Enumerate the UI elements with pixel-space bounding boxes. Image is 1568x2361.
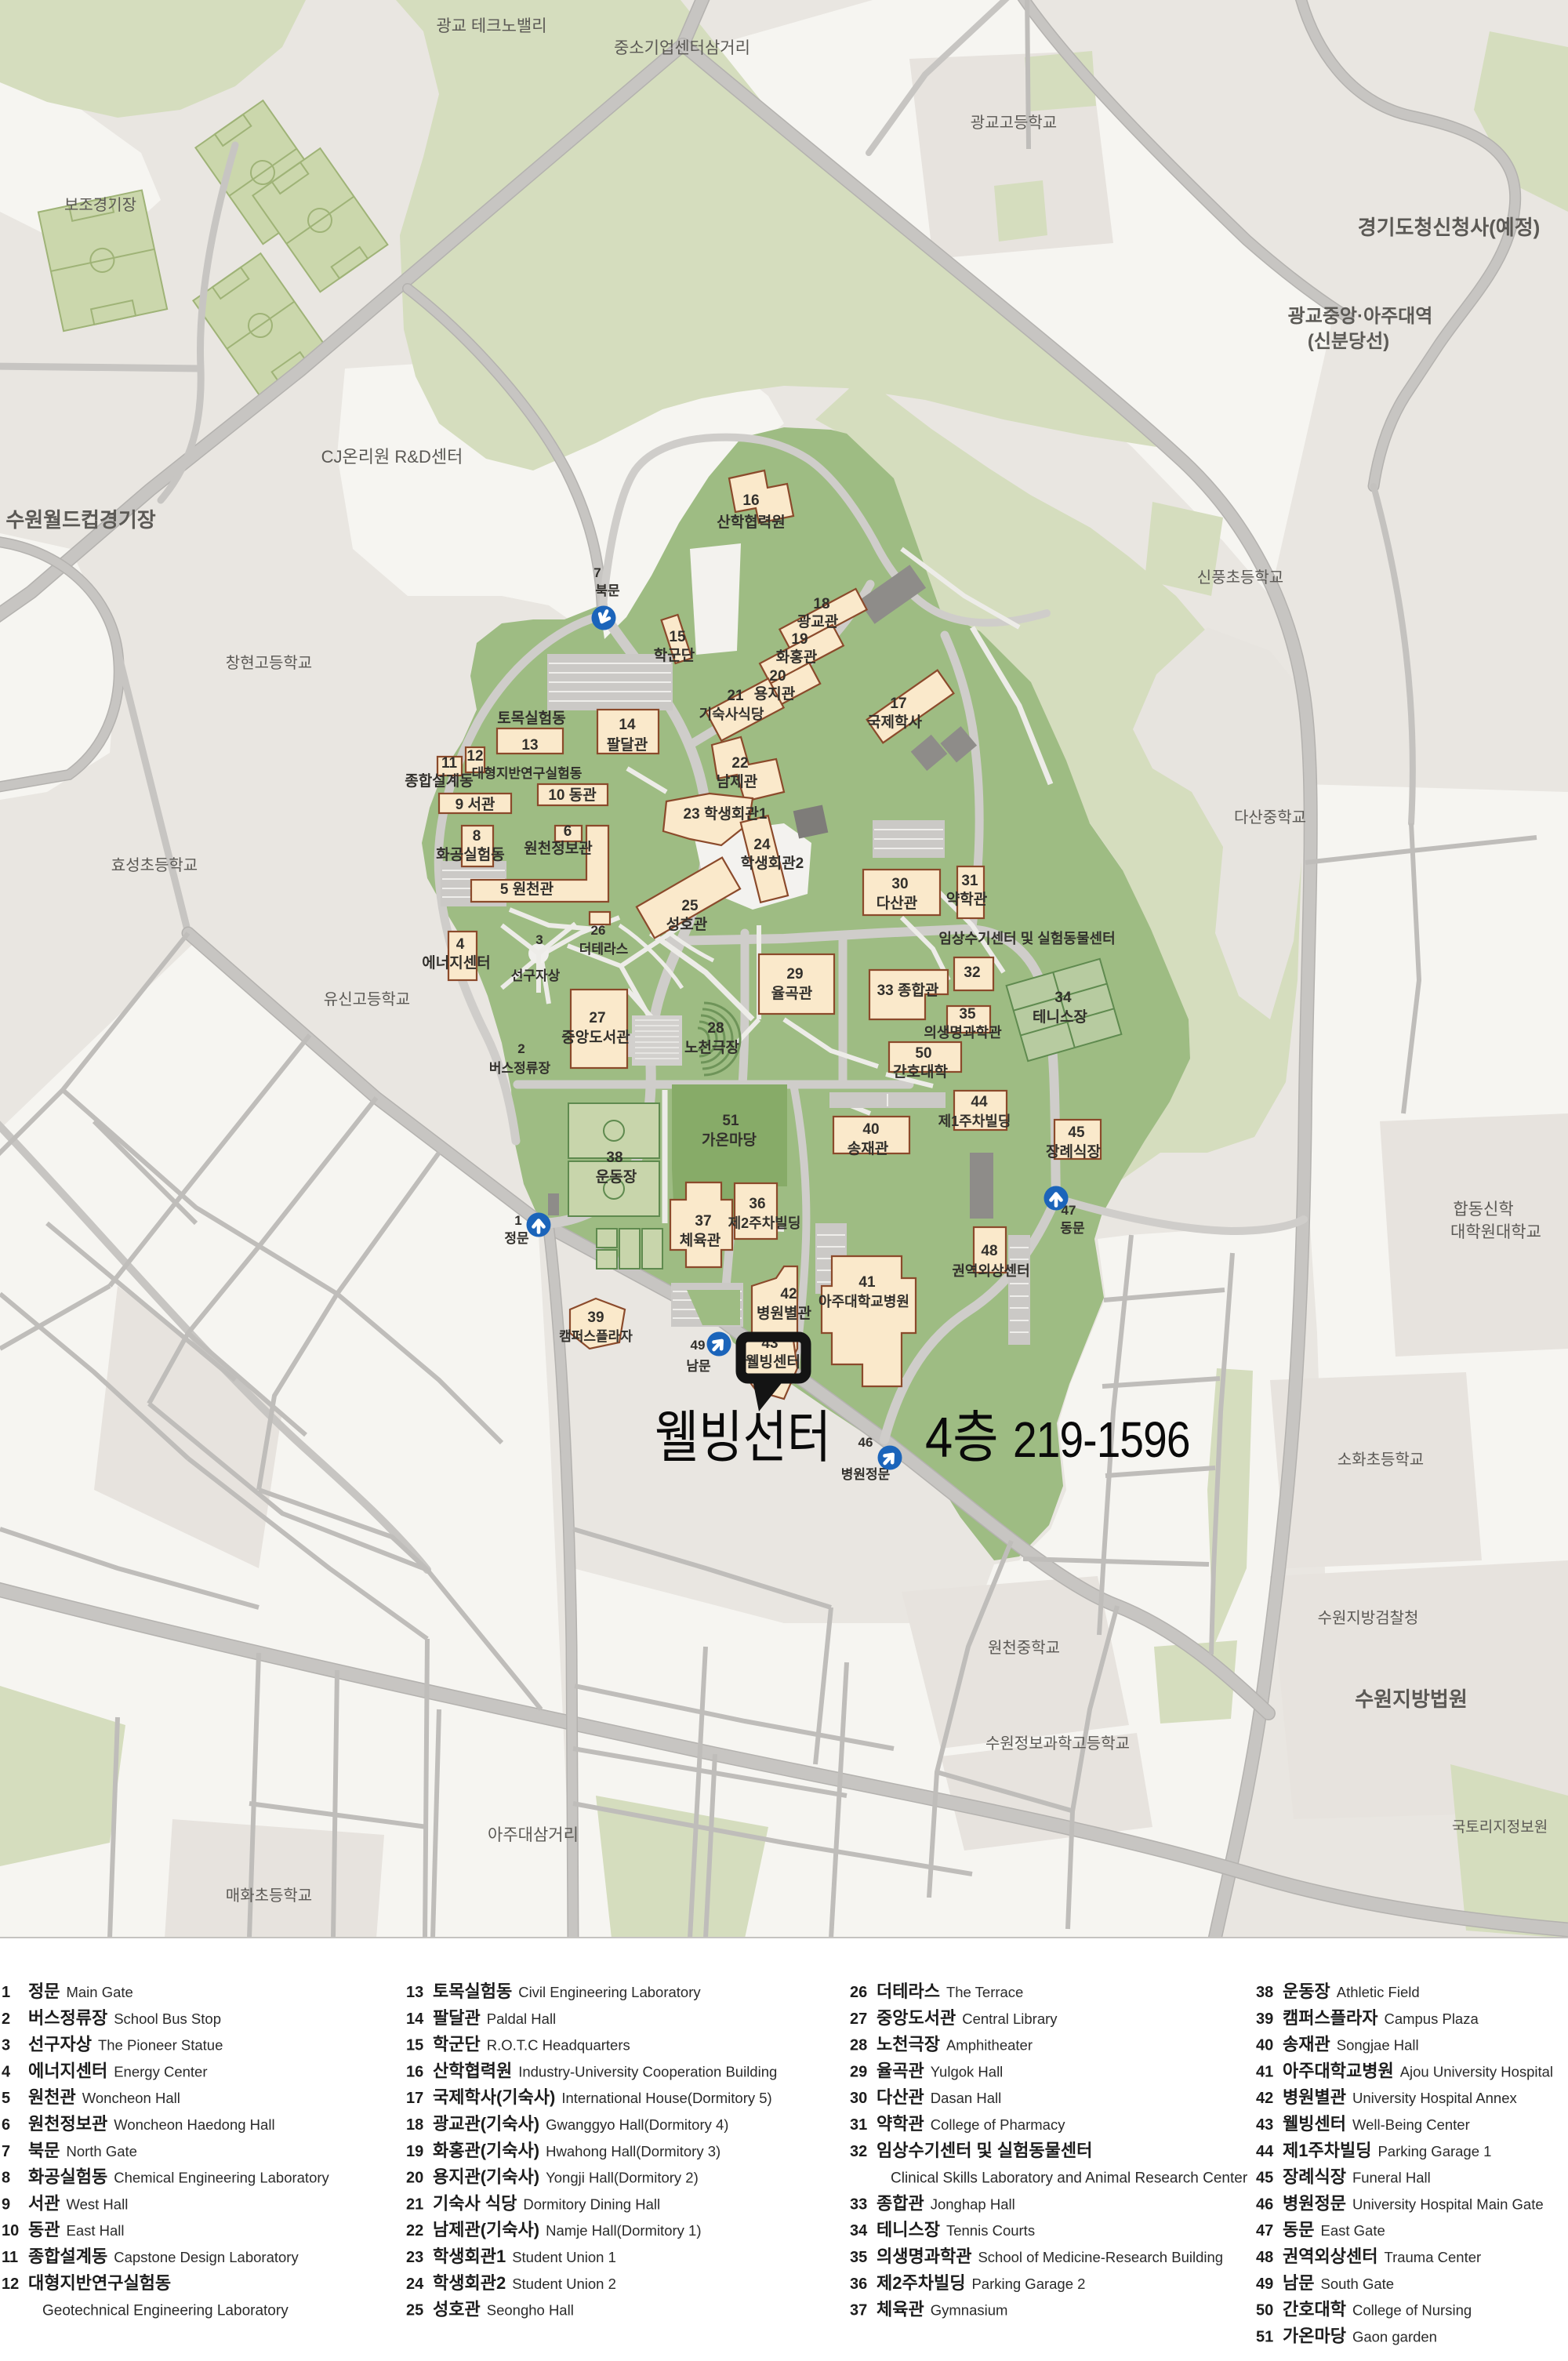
svg-text:보조경기장: 보조경기장: [64, 196, 136, 214]
svg-text:4: 4: [2, 2063, 11, 2080]
svg-text:25: 25: [681, 898, 699, 914]
svg-text:34: 34: [1054, 990, 1072, 1006]
svg-text:국제학사(기숙사)International House(D: 국제학사(기숙사)International House(Dormitory 5…: [433, 2087, 772, 2107]
svg-text:남제관(기숙사)Namje Hall(Dormitory 1: 남제관(기숙사)Namje Hall(Dormitory 1): [433, 2220, 701, 2239]
svg-text:에너지센터Energy Center: 에너지센터Energy Center: [28, 2061, 208, 2080]
svg-text:36: 36: [749, 1196, 765, 1212]
svg-text:광교고등학교: 광교고등학교: [971, 114, 1057, 132]
svg-text:38: 38: [1256, 1984, 1273, 2001]
svg-text:학군단R.O.T.C Headquarters: 학군단R.O.T.C Headquarters: [433, 2035, 630, 2054]
svg-text:정문Main Gate: 정문Main Gate: [28, 1981, 133, 2001]
svg-text:31: 31: [850, 2116, 867, 2134]
svg-text:웰빙선터: 웰빙선터: [655, 1407, 831, 1469]
svg-text:정문: 정문: [504, 1231, 529, 1246]
svg-text:다산관: 다산관: [877, 895, 918, 912]
svg-text:45: 45: [1256, 2170, 1273, 2187]
svg-text:22: 22: [406, 2222, 423, 2239]
svg-text:국제학사: 국제학사: [867, 714, 922, 731]
svg-text:19: 19: [406, 2143, 423, 2160]
svg-text:50: 50: [915, 1045, 931, 1062]
svg-text:산학협력원Industry-University Coope: 산학협력원Industry-University Cooperation Bui…: [433, 2061, 777, 2080]
svg-text:신풍초등학교: 신풍초등학교: [1197, 568, 1283, 587]
svg-text:47: 47: [1256, 2222, 1273, 2239]
svg-text:다산중학교: 다산중학교: [1234, 808, 1306, 826]
svg-text:20: 20: [406, 2170, 423, 2187]
svg-text:더테라스The Terrace: 더테라스The Terrace: [877, 1981, 1023, 2001]
svg-text:대형지반연구실험동: 대형지반연구실험동: [472, 765, 583, 781]
svg-text:40: 40: [1256, 2037, 1273, 2054]
svg-text:26: 26: [850, 1984, 867, 2001]
svg-text:4층: 4층: [925, 1407, 999, 1469]
svg-text:21: 21: [727, 688, 744, 704]
svg-text:CJ온리원 R&D센터: CJ온리원 R&D센터: [321, 447, 463, 467]
svg-text:테니스장: 테니스장: [1033, 1008, 1087, 1026]
svg-text:7: 7: [593, 565, 601, 580]
svg-text:화공실험동: 화공실험동: [436, 846, 504, 863]
svg-text:병원별관: 병원별관: [757, 1305, 811, 1322]
svg-text:45: 45: [1068, 1124, 1085, 1141]
svg-text:중소기업센터삼거리: 중소기업센터삼거리: [614, 39, 750, 57]
svg-text:동문: 동문: [1060, 1221, 1085, 1236]
svg-text:제2주차빌딩Parking Garage 2: 제2주차빌딩Parking Garage 2: [877, 2273, 1085, 2293]
svg-text:학군단: 학군단: [654, 647, 695, 664]
svg-text:44: 44: [1256, 2143, 1274, 2160]
svg-text:41: 41: [1256, 2063, 1273, 2080]
svg-text:북문: 북문: [595, 583, 620, 598]
svg-text:에너지센터: 에너지센터: [422, 954, 490, 972]
svg-text:남문South Gate: 남문South Gate: [1283, 2273, 1394, 2293]
svg-text:14: 14: [406, 2010, 424, 2028]
svg-text:31: 31: [961, 873, 978, 889]
svg-text:종합설계동Capstone Design Laborator: 종합설계동Capstone Design Laboratory: [28, 2247, 299, 2266]
svg-text:성호관Seongho Hall: 성호관Seongho Hall: [433, 2300, 574, 2319]
svg-text:16: 16: [406, 2063, 423, 2080]
svg-text:14: 14: [619, 717, 636, 733]
svg-text:22: 22: [731, 755, 748, 772]
svg-text:43: 43: [1256, 2116, 1273, 2134]
svg-text:42: 42: [1256, 2090, 1273, 2107]
svg-text:선구자상The Pioneer Statue: 선구자상The Pioneer Statue: [28, 2035, 223, 2054]
svg-text:대학원대학교: 대학원대학교: [1450, 1223, 1541, 1241]
svg-text:15: 15: [406, 2037, 423, 2054]
svg-text:원천정보관Woncheon Haedong Hall: 원천정보관Woncheon Haedong Hall: [28, 2114, 275, 2134]
svg-text:1: 1: [2, 1984, 10, 2001]
svg-text:수원정보과학고등학교: 수원정보과학고등학교: [985, 1734, 1130, 1753]
svg-text:1: 1: [514, 1213, 521, 1228]
svg-text:유신고등학교: 유신고등학교: [324, 990, 410, 1008]
svg-text:중앙도서관Central Library: 중앙도서관Central Library: [877, 2008, 1058, 2028]
svg-text:매화초등학교: 매화초등학교: [226, 1887, 312, 1905]
svg-text:17: 17: [890, 696, 906, 712]
svg-text:219-1596: 219-1596: [1013, 1411, 1190, 1468]
svg-text:화홍관: 화홍관: [776, 648, 818, 666]
svg-text:44: 44: [971, 1094, 988, 1110]
svg-text:원천정보관: 원천정보관: [524, 840, 593, 857]
svg-text:28: 28: [707, 1020, 724, 1037]
svg-text:13: 13: [521, 737, 538, 754]
svg-text:27: 27: [850, 2010, 867, 2028]
svg-text:24: 24: [753, 837, 771, 853]
svg-text:3: 3: [2, 2037, 10, 2054]
svg-text:41: 41: [858, 1274, 876, 1291]
svg-text:율곡관: 율곡관: [771, 985, 813, 1002]
svg-text:약학관College of Pharmacy: 약학관College of Pharmacy: [877, 2114, 1065, 2134]
svg-text:49: 49: [1256, 2276, 1273, 2293]
svg-text:성호관: 성호관: [666, 916, 708, 933]
svg-text:버스정류장School Bus Stop: 버스정류장School Bus Stop: [28, 2008, 221, 2028]
svg-text:26: 26: [591, 923, 606, 938]
svg-text:49: 49: [691, 1338, 706, 1353]
svg-text:소화초등학교: 소화초등학교: [1338, 1451, 1424, 1469]
svg-text:29: 29: [786, 966, 803, 983]
svg-text:체육관: 체육관: [680, 1232, 721, 1249]
svg-text:아주대삼거리: 아주대삼거리: [488, 1826, 579, 1844]
svg-text:팔달관: 팔달관: [607, 736, 648, 754]
svg-text:용지관(기숙사)Yongji Hall(Dormitory: 용지관(기숙사)Yongji Hall(Dormitory 2): [433, 2167, 699, 2187]
svg-text:임상수기센터 및 실험동물센터: 임상수기센터 및 실험동물센터: [877, 2141, 1092, 2160]
svg-text:동문East Gate: 동문East Gate: [1283, 2220, 1385, 2239]
svg-text:29: 29: [850, 2063, 867, 2080]
svg-text:화공실험동Chemical Engineering Labo: 화공실험동Chemical Engineering Laboratory: [28, 2167, 330, 2187]
svg-text:학생회관2Student Union 2: 학생회관2Student Union 2: [433, 2273, 616, 2293]
svg-text:39: 39: [587, 1309, 604, 1326]
svg-text:토목실험동: 토목실험동: [497, 710, 565, 727]
svg-text:8: 8: [2, 2170, 10, 2187]
svg-text:아주대학교병원: 아주대학교병원: [818, 1293, 909, 1309]
svg-text:임상수기센터 및 실험동물센터: 임상수기센터 및 실험동물센터: [938, 930, 1115, 946]
svg-text:원천관Woncheon Hall: 원천관Woncheon Hall: [28, 2087, 180, 2107]
svg-text:30: 30: [891, 876, 908, 892]
svg-text:선구자상: 선구자상: [511, 968, 561, 983]
svg-text:12: 12: [466, 748, 483, 765]
svg-text:대형지반연구실험동: 대형지반연구실험동: [28, 2273, 171, 2293]
svg-text:46: 46: [1256, 2196, 1273, 2213]
svg-text:23: 23: [406, 2249, 423, 2266]
svg-text:2: 2: [517, 1041, 524, 1056]
svg-text:33 종합관: 33 종합관: [877, 982, 939, 999]
svg-text:제1주차빌딩: 제1주차빌딩: [938, 1113, 1011, 1129]
svg-text:48: 48: [1256, 2249, 1273, 2266]
svg-text:토목실험동Civil Engineering Laborat: 토목실험동Civil Engineering Laboratory: [433, 1981, 701, 2001]
svg-text:간호대학: 간호대학: [893, 1063, 948, 1081]
svg-text:권역외상센터: 권역외상센터: [952, 1263, 1029, 1279]
svg-text:남제관: 남제관: [717, 773, 758, 790]
svg-text:51: 51: [1256, 2328, 1273, 2345]
svg-text:서관West Hall: 서관West Hall: [28, 2193, 128, 2213]
svg-text:42: 42: [780, 1286, 797, 1302]
svg-text:32: 32: [850, 2143, 867, 2160]
svg-text:16: 16: [742, 492, 759, 509]
svg-text:수원월드컵경기장: 수원월드컵경기장: [5, 508, 155, 532]
svg-text:25: 25: [406, 2302, 423, 2319]
svg-text:병원정문University Hospital Main G: 병원정문University Hospital Main Gate: [1283, 2193, 1544, 2213]
svg-text:(신분당선): (신분당선): [1308, 331, 1389, 352]
svg-text:율곡관Yulgok Hall: 율곡관Yulgok Hall: [877, 2061, 1003, 2080]
svg-text:의생명과학관: 의생명과학관: [924, 1024, 1002, 1041]
svg-text:24: 24: [406, 2276, 424, 2293]
svg-text:원천중학교: 원천중학교: [988, 1639, 1060, 1657]
svg-text:병원정문: 병원정문: [841, 1467, 891, 1482]
svg-text:창현고등학교: 창현고등학교: [226, 654, 312, 672]
svg-text:학생회관1Student Union 1: 학생회관1Student Union 1: [433, 2247, 616, 2266]
svg-text:운동장: 운동장: [596, 1168, 637, 1186]
svg-text:11: 11: [441, 755, 458, 772]
svg-text:웰빙센터: 웰빙센터: [746, 1353, 800, 1371]
svg-text:더테라스: 더테라스: [579, 942, 629, 957]
svg-text:13: 13: [406, 1984, 423, 2001]
svg-text:Geotechnical Engineering Labor: Geotechnical Engineering Laboratory: [42, 2303, 289, 2319]
svg-text:20: 20: [769, 668, 786, 685]
svg-text:32: 32: [964, 964, 980, 981]
svg-text:37: 37: [850, 2302, 867, 2319]
svg-text:광교관: 광교관: [797, 613, 839, 630]
svg-text:가온마당Gaon garden: 가온마당Gaon garden: [1283, 2326, 1437, 2345]
svg-text:7: 7: [2, 2143, 10, 2160]
svg-text:광교 테크노밸리: 광교 테크노밸리: [436, 17, 546, 35]
svg-text:27: 27: [589, 1010, 605, 1026]
svg-text:용지관: 용지관: [754, 685, 796, 703]
svg-text:경기도청신청사(예정): 경기도청신청사(예정): [1358, 216, 1541, 239]
svg-text:4: 4: [456, 936, 465, 953]
svg-text:남문: 남문: [686, 1359, 711, 1374]
svg-text:제2주차빌딩: 제2주차빌딩: [728, 1215, 801, 1231]
svg-text:5 원천관: 5 원천관: [500, 881, 554, 898]
svg-text:9 서관: 9 서관: [456, 796, 495, 813]
svg-text:15: 15: [669, 629, 686, 645]
svg-text:노천극장: 노천극장: [684, 1039, 739, 1056]
svg-text:종합설계동: 종합설계동: [405, 772, 473, 790]
svg-text:Clinical Skills Laboratory and: Clinical Skills Laboratory and Animal Re…: [891, 2170, 1248, 2187]
svg-text:운동장Athletic Field: 운동장Athletic Field: [1283, 1981, 1420, 2001]
svg-text:의생명과학관School of Medicine-Resea: 의생명과학관School of Medicine-Research Buildi…: [877, 2247, 1223, 2266]
svg-text:38: 38: [606, 1150, 622, 1166]
svg-text:10 동관: 10 동관: [548, 786, 597, 804]
svg-text:동관East Hall: 동관East Hall: [28, 2220, 125, 2239]
svg-text:35: 35: [850, 2249, 867, 2266]
svg-text:광교관(기숙사)Gwanggyo Hall(Dormitor: 광교관(기숙사)Gwanggyo Hall(Dormitory 4): [433, 2114, 728, 2134]
svg-text:수원지방법원: 수원지방법원: [1355, 1687, 1468, 1711]
svg-text:수원지방검찰청: 수원지방검찰청: [1318, 1609, 1419, 1627]
svg-text:10: 10: [2, 2222, 19, 2239]
svg-text:송재관: 송재관: [848, 1140, 889, 1157]
svg-text:23 학생회관1: 23 학생회관1: [684, 805, 768, 823]
svg-text:51: 51: [722, 1113, 739, 1129]
svg-text:17: 17: [406, 2090, 423, 2107]
svg-text:기숙사 식당Dormitory Dining Hall: 기숙사 식당Dormitory Dining Hall: [433, 2193, 660, 2213]
svg-text:산학협력원: 산학협력원: [717, 514, 785, 531]
svg-text:버스정류장: 버스정류장: [489, 1061, 551, 1076]
svg-text:장례식장Funeral Hall: 장례식장Funeral Hall: [1283, 2167, 1431, 2187]
svg-text:아주대학교병원Ajou University Hospita: 아주대학교병원Ajou University Hospital: [1283, 2061, 1553, 2080]
svg-text:35: 35: [959, 1006, 976, 1022]
svg-text:37: 37: [695, 1213, 711, 1230]
svg-text:효성초등학교: 효성초등학교: [111, 856, 198, 874]
svg-text:팔달관Paldal Hall: 팔달관Paldal Hall: [433, 2008, 556, 2028]
svg-text:39: 39: [1256, 2010, 1273, 2028]
svg-text:웰빙센터Well-Being Center: 웰빙센터Well-Being Center: [1283, 2114, 1470, 2134]
svg-text:중앙도서관: 중앙도서관: [561, 1029, 630, 1046]
svg-text:8: 8: [473, 828, 481, 845]
svg-text:제1주차빌딩Parking Garage 1: 제1주차빌딩Parking Garage 1: [1283, 2141, 1491, 2160]
svg-text:34: 34: [850, 2222, 868, 2239]
svg-text:다산관Dasan Hall: 다산관Dasan Hall: [877, 2087, 1001, 2107]
svg-text:21: 21: [406, 2196, 423, 2213]
svg-text:18: 18: [406, 2116, 423, 2134]
svg-text:48: 48: [981, 1243, 997, 1259]
svg-text:학생회관2: 학생회관2: [741, 855, 804, 872]
svg-text:노천극장Amphitheater: 노천극장Amphitheater: [877, 2035, 1033, 2054]
svg-text:국토리지정보원: 국토리지정보원: [1452, 1818, 1548, 1836]
svg-text:6: 6: [564, 823, 572, 840]
svg-text:11: 11: [2, 2249, 18, 2266]
svg-text:6: 6: [2, 2116, 10, 2134]
svg-text:33: 33: [850, 2196, 867, 2213]
svg-text:기숙사식당: 기숙사식당: [699, 706, 764, 722]
svg-text:장례식장: 장례식장: [1046, 1143, 1101, 1161]
svg-text:9: 9: [2, 2196, 10, 2213]
svg-text:합동신학: 합동신학: [1453, 1200, 1513, 1219]
svg-text:병원별관University Hospital Annex: 병원별관University Hospital Annex: [1283, 2087, 1517, 2107]
svg-text:2: 2: [2, 2010, 10, 2028]
svg-text:간호대학College of Nursing: 간호대학College of Nursing: [1283, 2300, 1472, 2319]
svg-text:30: 30: [850, 2090, 867, 2107]
svg-text:12: 12: [2, 2276, 19, 2293]
svg-text:40: 40: [862, 1121, 879, 1138]
svg-text:18: 18: [813, 596, 829, 612]
svg-text:화홍관(기숙사)Hwahong Hall(Dormitory: 화홍관(기숙사)Hwahong Hall(Dormitory 3): [433, 2141, 720, 2160]
svg-text:약학관: 약학관: [946, 891, 988, 908]
svg-text:50: 50: [1256, 2302, 1273, 2319]
svg-text:광교중앙·아주대역: 광교중앙·아주대역: [1288, 306, 1433, 327]
svg-text:28: 28: [850, 2037, 867, 2054]
svg-text:36: 36: [850, 2276, 867, 2293]
svg-text:19: 19: [791, 631, 808, 648]
svg-text:종합관Jonghap Hall: 종합관Jonghap Hall: [877, 2193, 1015, 2213]
svg-text:5: 5: [2, 2090, 10, 2107]
svg-text:테니스장Tennis Courts: 테니스장Tennis Courts: [877, 2220, 1035, 2239]
svg-text:캠퍼스플라자: 캠퍼스플라자: [559, 1329, 633, 1344]
svg-text:3: 3: [535, 932, 543, 947]
svg-text:가온마당: 가온마당: [702, 1131, 757, 1149]
svg-text:송재관Songjae Hall: 송재관Songjae Hall: [1283, 2035, 1419, 2054]
svg-text:체육관Gymnasium: 체육관Gymnasium: [877, 2300, 1007, 2319]
svg-text:북문North Gate: 북문North Gate: [28, 2141, 137, 2160]
svg-text:46: 46: [858, 1435, 873, 1450]
